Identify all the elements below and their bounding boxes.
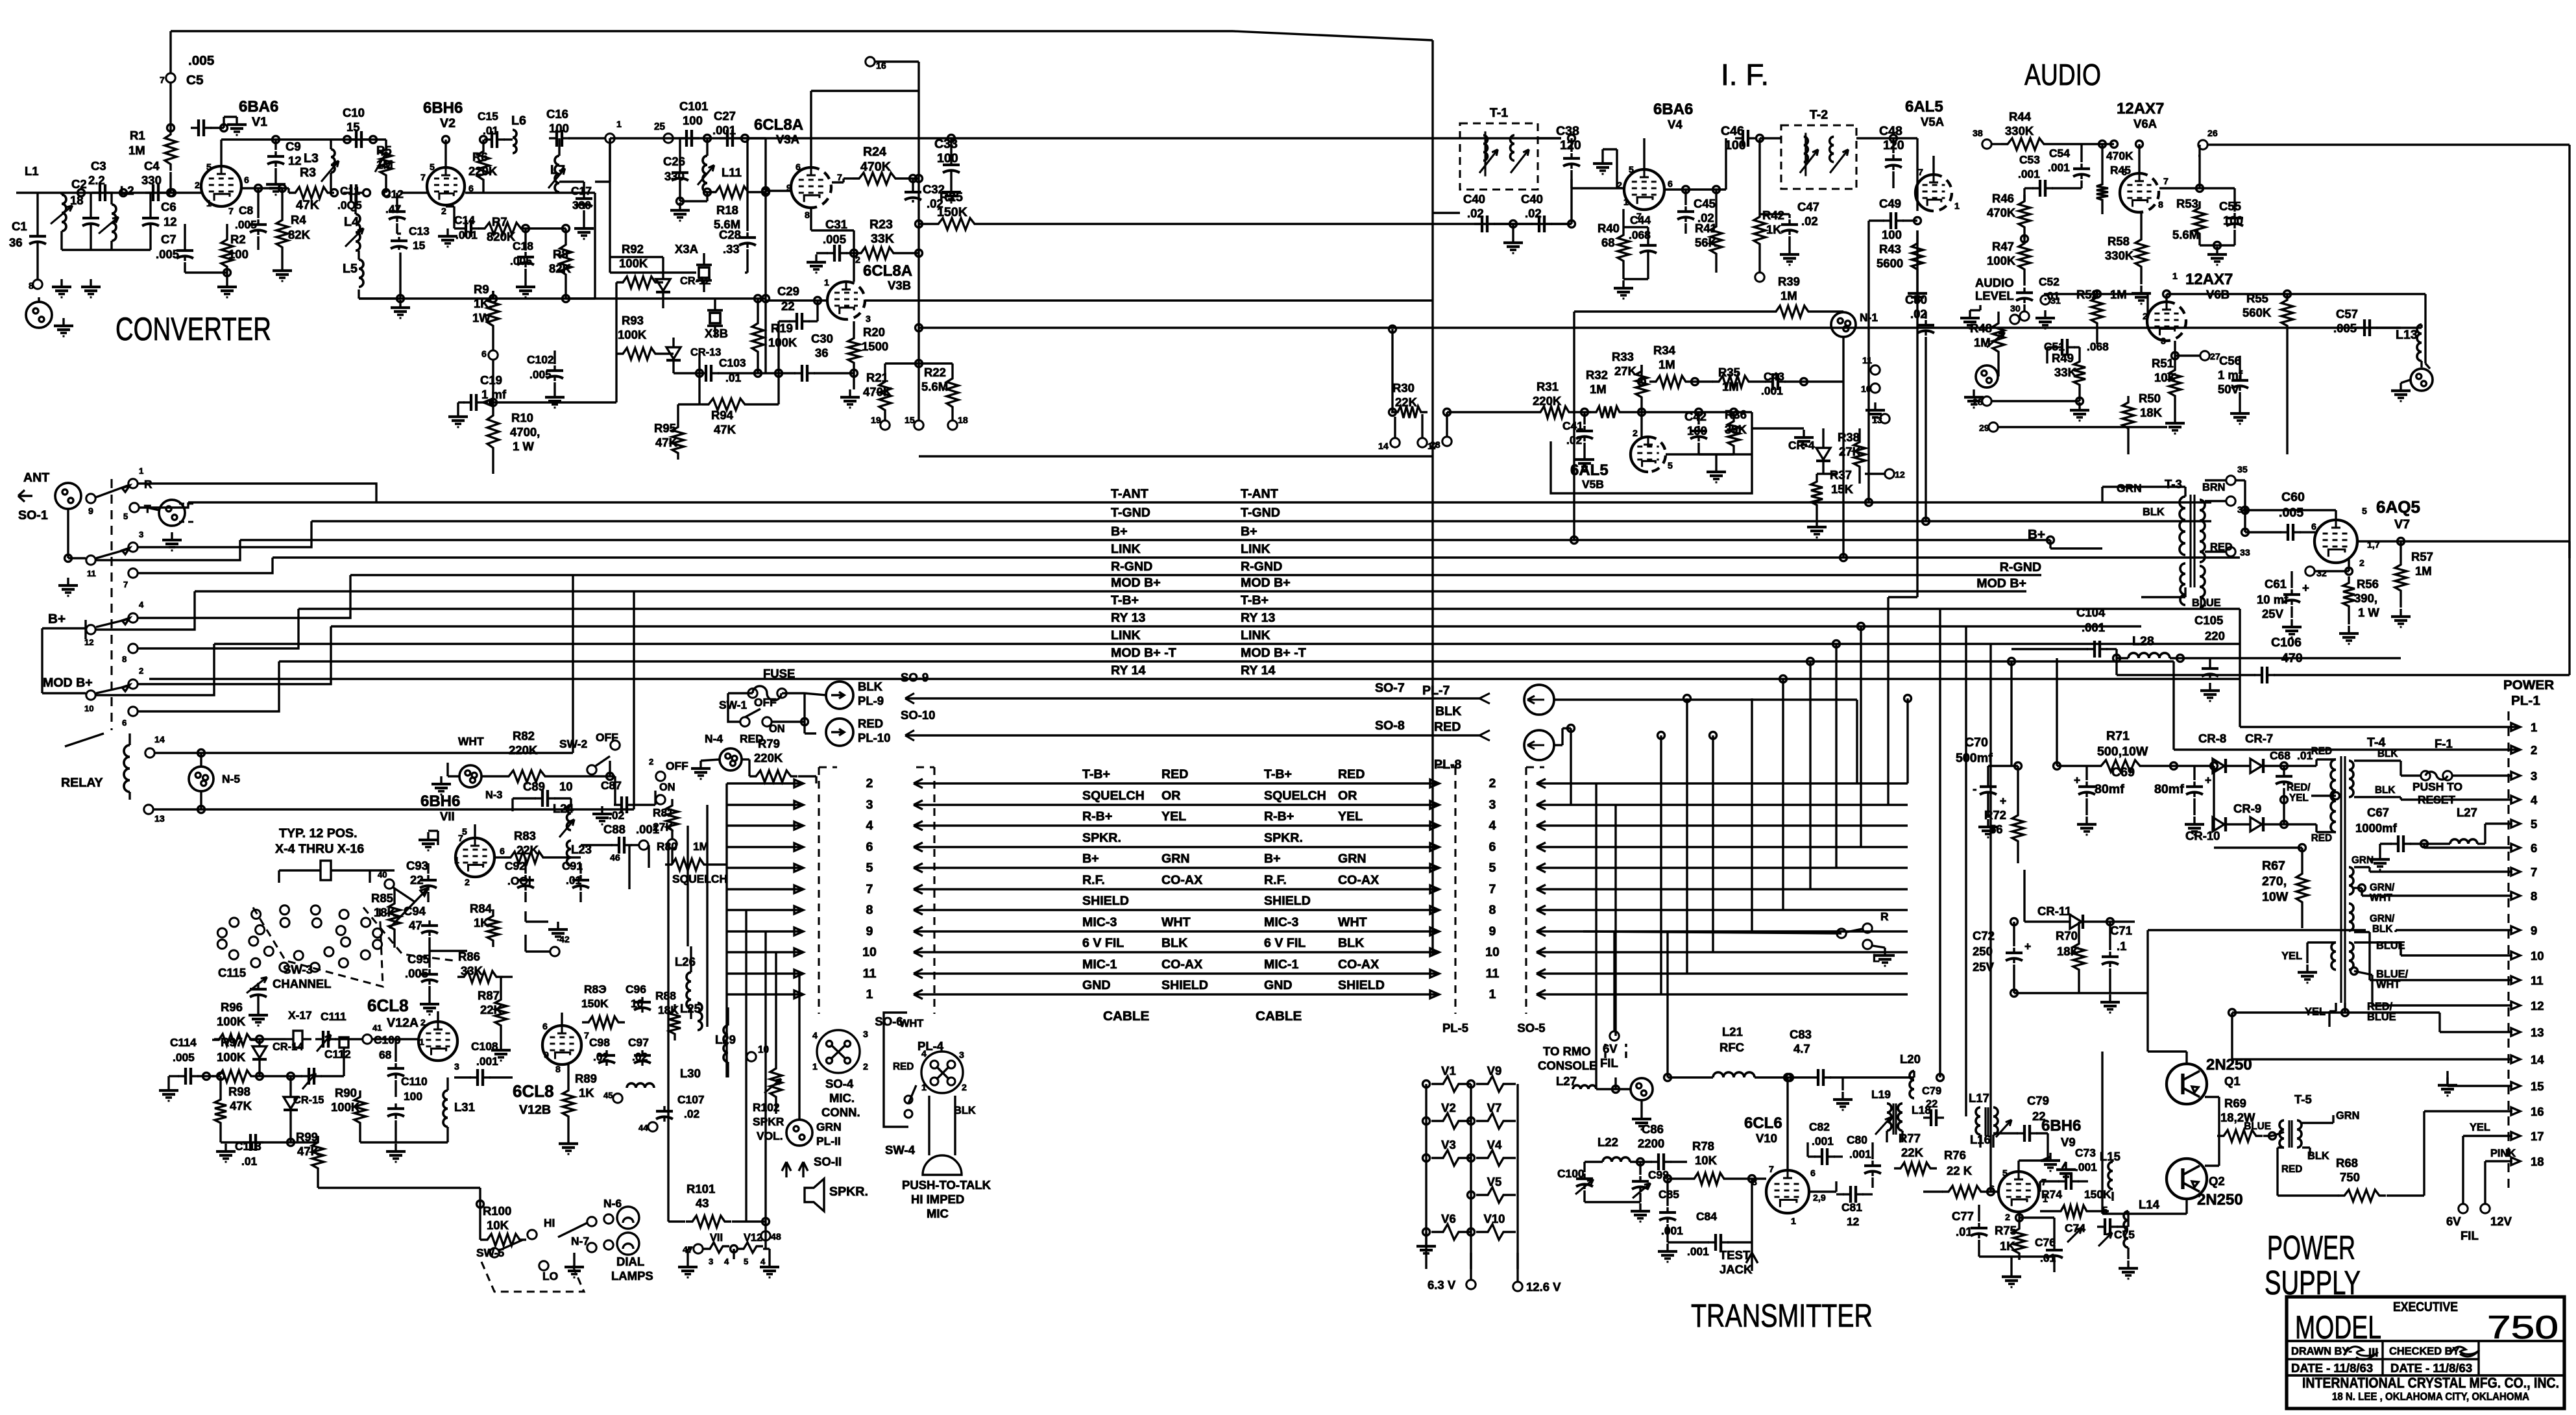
svg-text:POWER: POWER xyxy=(2267,1229,2355,1267)
svg-text:HI: HI xyxy=(544,1216,555,1229)
svg-text:T-3: T-3 xyxy=(2165,477,2182,491)
svg-text:.001: .001 xyxy=(2075,1161,2097,1174)
svg-text:R38: R38 xyxy=(1838,430,1860,444)
svg-text:C50: C50 xyxy=(1905,293,1927,306)
svg-text:10: 10 xyxy=(559,780,573,793)
svg-text:R22: R22 xyxy=(924,365,946,379)
svg-text:N-3: N-3 xyxy=(485,789,502,801)
svg-text:6: 6 xyxy=(1668,179,1673,190)
svg-text:YEL: YEL xyxy=(1338,809,1363,824)
svg-text:47K: 47K xyxy=(296,198,319,212)
svg-text:C115: C115 xyxy=(218,966,246,979)
svg-text:VII: VII xyxy=(710,1232,723,1244)
svg-text:R45: R45 xyxy=(2110,164,2131,177)
svg-text:R-B+: R-B+ xyxy=(1264,809,1294,824)
svg-text:L19: L19 xyxy=(1871,1088,1891,1101)
svg-text:R50: R50 xyxy=(2139,391,2161,405)
svg-text:C71: C71 xyxy=(2110,924,2132,937)
svg-text:C55: C55 xyxy=(2219,199,2241,213)
svg-text:V9: V9 xyxy=(2061,1135,2076,1149)
svg-text:YEL: YEL xyxy=(2289,793,2309,804)
svg-text:1: 1 xyxy=(1489,987,1496,1002)
svg-text:LINK: LINK xyxy=(1241,628,1270,643)
svg-text:V1: V1 xyxy=(1441,1064,1456,1077)
svg-text:2200: 2200 xyxy=(1638,1137,1664,1150)
svg-text:MOD B+: MOD B+ xyxy=(1976,576,2026,591)
svg-text:MODEL: MODEL xyxy=(2295,1309,2381,1346)
svg-text:15K: 15K xyxy=(1831,482,1854,496)
svg-text:T-ANT: T-ANT xyxy=(1111,487,1148,501)
svg-text:7: 7 xyxy=(2041,1177,2047,1188)
svg-text:BLK: BLK xyxy=(2372,924,2392,935)
svg-text:RED: RED xyxy=(2311,833,2332,844)
svg-text:11: 11 xyxy=(1862,356,1872,366)
svg-text:.005: .005 xyxy=(823,232,846,246)
svg-text:2: 2 xyxy=(1633,428,1638,439)
svg-text:B+: B+ xyxy=(1082,852,1099,866)
svg-text:8: 8 xyxy=(2158,200,2163,210)
svg-text:L14: L14 xyxy=(2139,1198,2160,1211)
svg-text:22: 22 xyxy=(781,299,795,313)
svg-text:12AX7: 12AX7 xyxy=(2117,100,2164,117)
svg-text:YEL: YEL xyxy=(2470,1122,2490,1133)
svg-text:R30: R30 xyxy=(1392,381,1415,395)
svg-text:V6A: V6A xyxy=(2133,117,2157,130)
svg-text:Q2: Q2 xyxy=(2209,1174,2225,1188)
svg-text:C3: C3 xyxy=(91,159,106,173)
svg-text:47K: 47K xyxy=(230,1099,252,1113)
svg-text:VII: VII xyxy=(440,809,455,823)
svg-text:68: 68 xyxy=(379,1048,392,1061)
svg-text:5: 5 xyxy=(462,827,467,837)
svg-text:C29: C29 xyxy=(777,284,799,298)
svg-text:15: 15 xyxy=(413,239,426,252)
svg-text:BLK: BLK xyxy=(2375,785,2395,796)
svg-text:11: 11 xyxy=(863,966,877,981)
svg-text:3: 3 xyxy=(866,798,873,812)
svg-text:2,9: 2,9 xyxy=(1813,1193,1826,1203)
svg-text:8: 8 xyxy=(29,281,34,291)
svg-text:3: 3 xyxy=(454,1062,459,1072)
svg-text:R57: R57 xyxy=(2411,550,2433,563)
svg-text:C97: C97 xyxy=(628,1036,649,1049)
svg-text:V10: V10 xyxy=(1484,1212,1505,1225)
svg-text:11: 11 xyxy=(2531,974,2544,987)
svg-text:L15: L15 xyxy=(2100,1150,2120,1163)
svg-text:750: 750 xyxy=(2340,1170,2360,1184)
svg-text:4: 4 xyxy=(760,1257,766,1266)
svg-text:22: 22 xyxy=(1926,1098,1938,1110)
svg-text:6AL5: 6AL5 xyxy=(1570,461,1609,479)
svg-text:C79: C79 xyxy=(2027,1094,2049,1107)
svg-text:RY 14: RY 14 xyxy=(1111,663,1145,678)
svg-text:8: 8 xyxy=(1489,903,1496,917)
svg-text:V1: V1 xyxy=(252,115,267,129)
svg-text:.33: .33 xyxy=(723,242,740,256)
svg-text:R69: R69 xyxy=(2224,1096,2246,1110)
svg-text:R72: R72 xyxy=(1984,808,2006,822)
svg-text:GRN: GRN xyxy=(2336,1110,2359,1122)
svg-text:V3B: V3B xyxy=(888,278,911,292)
svg-text:RED: RED xyxy=(1338,767,1365,781)
svg-text:R39: R39 xyxy=(1778,275,1800,288)
svg-text:5.6M: 5.6M xyxy=(921,380,948,393)
svg-text:+: + xyxy=(2024,940,2031,953)
svg-text:C107: C107 xyxy=(677,1093,705,1106)
svg-text:R18: R18 xyxy=(716,203,738,217)
svg-text:5600: 5600 xyxy=(1877,256,1903,270)
svg-text:5: 5 xyxy=(866,861,873,875)
svg-text:7: 7 xyxy=(1489,882,1496,896)
svg-text:C111: C111 xyxy=(321,1010,346,1023)
svg-text:6: 6 xyxy=(481,349,487,360)
svg-text:CONN.: CONN. xyxy=(821,1105,860,1119)
svg-text:TRANSMITTER: TRANSMITTER xyxy=(1691,1298,1873,1334)
svg-text:C104: C104 xyxy=(2076,606,2106,619)
svg-text:6BA6: 6BA6 xyxy=(1653,101,1693,118)
svg-text:1: 1 xyxy=(1623,197,1629,208)
svg-text:6AL5: 6AL5 xyxy=(1905,98,1943,116)
svg-text:N-5: N-5 xyxy=(222,772,240,785)
svg-text:C17: C17 xyxy=(571,184,592,197)
svg-text:SQUELCH: SQUELCH xyxy=(672,872,727,885)
svg-text:9: 9 xyxy=(544,1050,549,1061)
svg-text:.001: .001 xyxy=(476,1055,498,1068)
svg-text:R74: R74 xyxy=(2041,1188,2062,1201)
svg-text:BLK: BLK xyxy=(954,1105,976,1116)
svg-text:R9: R9 xyxy=(474,282,489,296)
svg-text:C114: C114 xyxy=(170,1036,197,1049)
svg-text:MIC-3: MIC-3 xyxy=(1264,915,1298,929)
svg-text:C70: C70 xyxy=(1965,735,1988,750)
svg-text:35: 35 xyxy=(2237,465,2248,475)
svg-text:6 V FIL: 6 V FIL xyxy=(1264,936,1306,950)
svg-text:L1: L1 xyxy=(25,164,39,178)
svg-text:GRN: GRN xyxy=(816,1120,842,1133)
svg-text:C92: C92 xyxy=(505,859,526,872)
svg-text:82K: 82K xyxy=(288,228,311,241)
svg-text:7: 7 xyxy=(2531,865,2537,879)
svg-text:V2: V2 xyxy=(1441,1101,1456,1114)
svg-text:1: 1 xyxy=(824,278,829,288)
svg-text:6 V FIL: 6 V FIL xyxy=(1082,936,1124,950)
svg-text:EXECUTIVE: EXECUTIVE xyxy=(2393,1299,2458,1314)
svg-text:5: 5 xyxy=(2002,1168,2008,1179)
svg-text:PL-II: PL-II xyxy=(816,1135,841,1148)
svg-text:10K: 10K xyxy=(487,1218,509,1232)
svg-text:C16: C16 xyxy=(546,107,568,121)
svg-text:R71: R71 xyxy=(2106,729,2130,743)
svg-text:.001: .001 xyxy=(1661,1224,1683,1237)
svg-text:V5A: V5A xyxy=(1921,115,1944,129)
svg-text:RED: RED xyxy=(2281,1164,2302,1175)
svg-text:HI IMPED: HI IMPED xyxy=(911,1192,964,1206)
svg-text:VOL.: VOL. xyxy=(757,1129,783,1142)
svg-text:V12B: V12B xyxy=(519,1103,551,1117)
svg-text:BLUE: BLUE xyxy=(2244,1121,2271,1132)
svg-text:.005: .005 xyxy=(173,1051,195,1064)
svg-text:C18: C18 xyxy=(513,240,533,252)
svg-text:8: 8 xyxy=(122,654,127,664)
svg-text:7: 7 xyxy=(123,580,128,589)
svg-text:B+: B+ xyxy=(2028,527,2045,542)
svg-text:LINK: LINK xyxy=(1241,542,1270,556)
svg-text:C46: C46 xyxy=(1721,124,1744,138)
svg-text:SHIELD: SHIELD xyxy=(1161,978,1208,992)
svg-text:V12: V12 xyxy=(744,1232,762,1244)
svg-text:R98: R98 xyxy=(228,1085,250,1098)
svg-text:1M: 1M xyxy=(1780,289,1797,302)
svg-text:CHANNEL: CHANNEL xyxy=(273,977,331,991)
svg-text:330K: 330K xyxy=(2005,124,2034,138)
svg-text:R19: R19 xyxy=(771,321,793,335)
svg-text:2: 2 xyxy=(420,1018,426,1028)
svg-text:L26: L26 xyxy=(675,955,696,968)
svg-text:5: 5 xyxy=(123,511,128,521)
svg-text:L13: L13 xyxy=(2396,328,2418,342)
svg-text:C86: C86 xyxy=(1642,1122,1664,1136)
svg-text:R100: R100 xyxy=(483,1204,511,1218)
svg-text:T-GND: T-GND xyxy=(1241,506,1280,520)
svg-text:N-6: N-6 xyxy=(603,1197,622,1210)
svg-text:46: 46 xyxy=(610,853,620,863)
svg-text:100: 100 xyxy=(404,1090,422,1103)
svg-text:1K: 1K xyxy=(579,1086,594,1100)
svg-text:.005: .005 xyxy=(188,53,214,68)
svg-text:1: 1 xyxy=(866,987,873,1002)
svg-text:6CL8: 6CL8 xyxy=(367,996,409,1015)
svg-text:SQUELCH: SQUELCH xyxy=(1082,789,1145,803)
svg-text:TEST: TEST xyxy=(1719,1248,1751,1262)
svg-text:6CL8A: 6CL8A xyxy=(863,262,912,280)
svg-text:V7: V7 xyxy=(1487,1101,1502,1114)
svg-text:R95: R95 xyxy=(654,421,676,435)
svg-text:SO-4: SO-4 xyxy=(825,1077,854,1090)
svg-text:SHIELD: SHIELD xyxy=(1082,894,1129,908)
svg-text:R84: R84 xyxy=(470,902,492,915)
svg-text:100: 100 xyxy=(683,114,703,127)
svg-text:OFF: OFF xyxy=(596,731,618,744)
svg-text:V9: V9 xyxy=(1487,1064,1502,1077)
svg-text:R58: R58 xyxy=(2108,234,2130,248)
svg-text:43: 43 xyxy=(696,1196,709,1210)
svg-text:2: 2 xyxy=(866,776,873,791)
svg-text:R85: R85 xyxy=(371,891,393,905)
svg-text:3: 3 xyxy=(2531,769,2537,783)
svg-text:470K: 470K xyxy=(1987,206,2016,219)
svg-text:R83: R83 xyxy=(514,829,536,843)
svg-text:SQUELCH: SQUELCH xyxy=(1264,789,1326,803)
svg-text:50V: 50V xyxy=(2218,382,2240,396)
svg-text:PINK: PINK xyxy=(2490,1148,2516,1159)
svg-text:330K: 330K xyxy=(2105,249,2134,262)
svg-text:150K: 150K xyxy=(2084,1188,2111,1201)
svg-text:L5: L5 xyxy=(343,262,358,276)
svg-text:L3: L3 xyxy=(304,151,319,166)
svg-text:9: 9 xyxy=(2531,924,2537,937)
svg-text:C93: C93 xyxy=(406,859,428,872)
svg-text:C9: C9 xyxy=(286,140,301,153)
svg-text:T-B+: T-B+ xyxy=(1264,767,1292,781)
svg-text:+: + xyxy=(2074,774,2080,787)
svg-text:R: R xyxy=(1880,910,1889,923)
svg-text:500mf: 500mf xyxy=(1956,751,1993,765)
svg-text:R96: R96 xyxy=(221,1000,243,1014)
svg-text:R31: R31 xyxy=(1537,380,1559,393)
svg-text:6BA6: 6BA6 xyxy=(239,98,278,116)
svg-text:T-GND: T-GND xyxy=(1111,506,1150,520)
svg-text:22K: 22K xyxy=(1901,1146,1924,1159)
svg-text:BLK: BLK xyxy=(1435,704,1461,719)
svg-text:R24: R24 xyxy=(863,145,886,159)
svg-text:.068: .068 xyxy=(2087,340,2109,353)
svg-text:C110: C110 xyxy=(401,1075,428,1088)
svg-text:25V: 25V xyxy=(2262,607,2284,621)
svg-text:WHT: WHT xyxy=(458,735,484,748)
svg-text:12: 12 xyxy=(1895,470,1905,480)
svg-text:2: 2 xyxy=(139,666,143,676)
svg-text:SPKR.: SPKR. xyxy=(829,1185,868,1199)
svg-text:12: 12 xyxy=(164,215,177,228)
svg-text:BLUE: BLUE xyxy=(2192,597,2221,609)
svg-text:FIL: FIL xyxy=(2461,1229,2479,1242)
svg-text:R88: R88 xyxy=(655,989,676,1002)
svg-text:25: 25 xyxy=(654,121,666,132)
svg-text:C28: C28 xyxy=(719,228,741,241)
svg-text:L30: L30 xyxy=(680,1066,701,1080)
svg-text:X-17: X-17 xyxy=(288,1009,312,1022)
svg-text:RED: RED xyxy=(893,1061,914,1072)
svg-text:PL-10: PL-10 xyxy=(858,731,890,744)
svg-text:R76: R76 xyxy=(1944,1148,1966,1162)
svg-text:T-4: T-4 xyxy=(2367,735,2385,750)
svg-text:DATE - 11/8/63: DATE - 11/8/63 xyxy=(2390,1361,2472,1375)
svg-text:V12A: V12A xyxy=(387,1016,419,1030)
svg-text:LINK: LINK xyxy=(1111,542,1141,556)
svg-text:PL-7: PL-7 xyxy=(1422,683,1450,698)
svg-text:RY 13: RY 13 xyxy=(1241,611,1275,625)
svg-text:18: 18 xyxy=(2531,1155,2544,1168)
svg-text:B+: B+ xyxy=(48,611,66,626)
svg-text:C84: C84 xyxy=(1696,1210,1717,1223)
svg-text:5: 5 xyxy=(430,162,435,173)
svg-text:560K: 560K xyxy=(2242,306,2272,319)
svg-text:5: 5 xyxy=(206,162,212,173)
svg-text:5: 5 xyxy=(1489,861,1496,875)
svg-text:6: 6 xyxy=(796,162,801,173)
svg-text:6: 6 xyxy=(122,718,127,728)
svg-text:C67: C67 xyxy=(2367,806,2389,819)
svg-text:11: 11 xyxy=(1486,966,1500,981)
svg-text:C4: C4 xyxy=(144,159,160,173)
svg-text:.01: .01 xyxy=(241,1155,258,1168)
svg-text:4: 4 xyxy=(921,1049,927,1059)
svg-text:1: 1 xyxy=(812,1062,818,1072)
svg-text:CR-4: CR-4 xyxy=(1788,439,1815,452)
svg-text:R43: R43 xyxy=(1879,242,1901,256)
svg-text:1: 1 xyxy=(1954,201,1960,212)
svg-text:14: 14 xyxy=(1378,441,1389,452)
svg-text:R70: R70 xyxy=(2056,929,2078,942)
svg-text:OR: OR xyxy=(1161,789,1180,803)
svg-text:FIL: FIL xyxy=(1600,1056,1618,1070)
svg-text:220: 220 xyxy=(2205,629,2225,643)
svg-text:C45: C45 xyxy=(1694,197,1716,210)
svg-text:3: 3 xyxy=(866,314,871,325)
svg-text:R53: R53 xyxy=(2176,197,2198,210)
svg-text:R.F.: R.F. xyxy=(1264,873,1287,887)
svg-text:470K: 470K xyxy=(2106,149,2133,162)
svg-text:CABLE: CABLE xyxy=(1103,1009,1149,1024)
svg-text:C40: C40 xyxy=(1463,192,1485,206)
svg-text:.001: .001 xyxy=(636,822,659,836)
svg-text:CR-9: CR-9 xyxy=(2233,802,2261,815)
svg-text:C112: C112 xyxy=(324,1048,351,1061)
svg-text:15: 15 xyxy=(346,120,360,134)
svg-text:C15: C15 xyxy=(478,110,498,123)
svg-text:12V: 12V xyxy=(2490,1214,2512,1228)
svg-text:RED: RED xyxy=(1161,767,1188,781)
svg-text:SPKR: SPKR xyxy=(753,1115,784,1128)
svg-text:C49: C49 xyxy=(1879,197,1901,210)
svg-text:WHT: WHT xyxy=(2370,892,2392,904)
svg-text:7: 7 xyxy=(160,75,165,86)
svg-text:220K: 220K xyxy=(754,751,783,765)
svg-text:470K: 470K xyxy=(860,160,891,174)
svg-text:7: 7 xyxy=(584,1031,589,1041)
svg-text:YEL: YEL xyxy=(1161,809,1186,824)
svg-text:2N250: 2N250 xyxy=(2206,1056,2252,1074)
svg-text:GRN/: GRN/ xyxy=(2370,882,2395,893)
svg-text:CR-11: CR-11 xyxy=(2037,904,2071,918)
svg-text:18K: 18K xyxy=(2140,406,2163,419)
svg-text:15: 15 xyxy=(905,415,915,426)
svg-text:WHT: WHT xyxy=(1338,915,1367,929)
svg-text:R77: R77 xyxy=(1899,1131,1921,1145)
svg-text:C61: C61 xyxy=(2265,577,2287,591)
svg-text:C7: C7 xyxy=(161,232,176,246)
svg-text:V3: V3 xyxy=(1441,1138,1456,1151)
svg-text:SPKR.: SPKR. xyxy=(1082,831,1121,845)
svg-text:T-B+: T-B+ xyxy=(1082,767,1110,781)
svg-text:100K: 100K xyxy=(1987,254,2016,267)
svg-text:+: + xyxy=(2205,774,2211,787)
svg-text:BLK: BLK xyxy=(2143,506,2165,518)
svg-text:.001: .001 xyxy=(2018,167,2040,180)
svg-text:22: 22 xyxy=(2032,1109,2046,1123)
svg-text:12: 12 xyxy=(1847,1215,1859,1228)
svg-text:X-4 THRU X-16: X-4 THRU X-16 xyxy=(275,842,364,856)
svg-text:R93: R93 xyxy=(622,314,644,327)
svg-text:CO-AX: CO-AX xyxy=(1338,957,1379,972)
svg-text:PL-8: PL-8 xyxy=(1434,757,1462,772)
svg-text:2: 2 xyxy=(962,1083,967,1093)
svg-text:5: 5 xyxy=(2362,506,2367,517)
svg-text:T-5: T-5 xyxy=(2294,1092,2312,1106)
svg-text:23: 23 xyxy=(1430,440,1440,450)
svg-text:X3B: X3B xyxy=(705,326,728,340)
svg-text:10K: 10K xyxy=(1695,1153,1718,1167)
svg-text:C27: C27 xyxy=(714,109,736,123)
svg-text:R82: R82 xyxy=(513,729,535,743)
svg-text:22 K: 22 K xyxy=(1947,1164,1973,1177)
svg-text:L11: L11 xyxy=(722,166,742,179)
svg-text:100: 100 xyxy=(1882,228,1902,241)
svg-text:MOD B+ -T: MOD B+ -T xyxy=(1111,646,1176,660)
svg-text:MIC-3: MIC-3 xyxy=(1082,915,1117,929)
svg-text:L31: L31 xyxy=(454,1100,475,1114)
svg-text:6: 6 xyxy=(866,840,873,854)
